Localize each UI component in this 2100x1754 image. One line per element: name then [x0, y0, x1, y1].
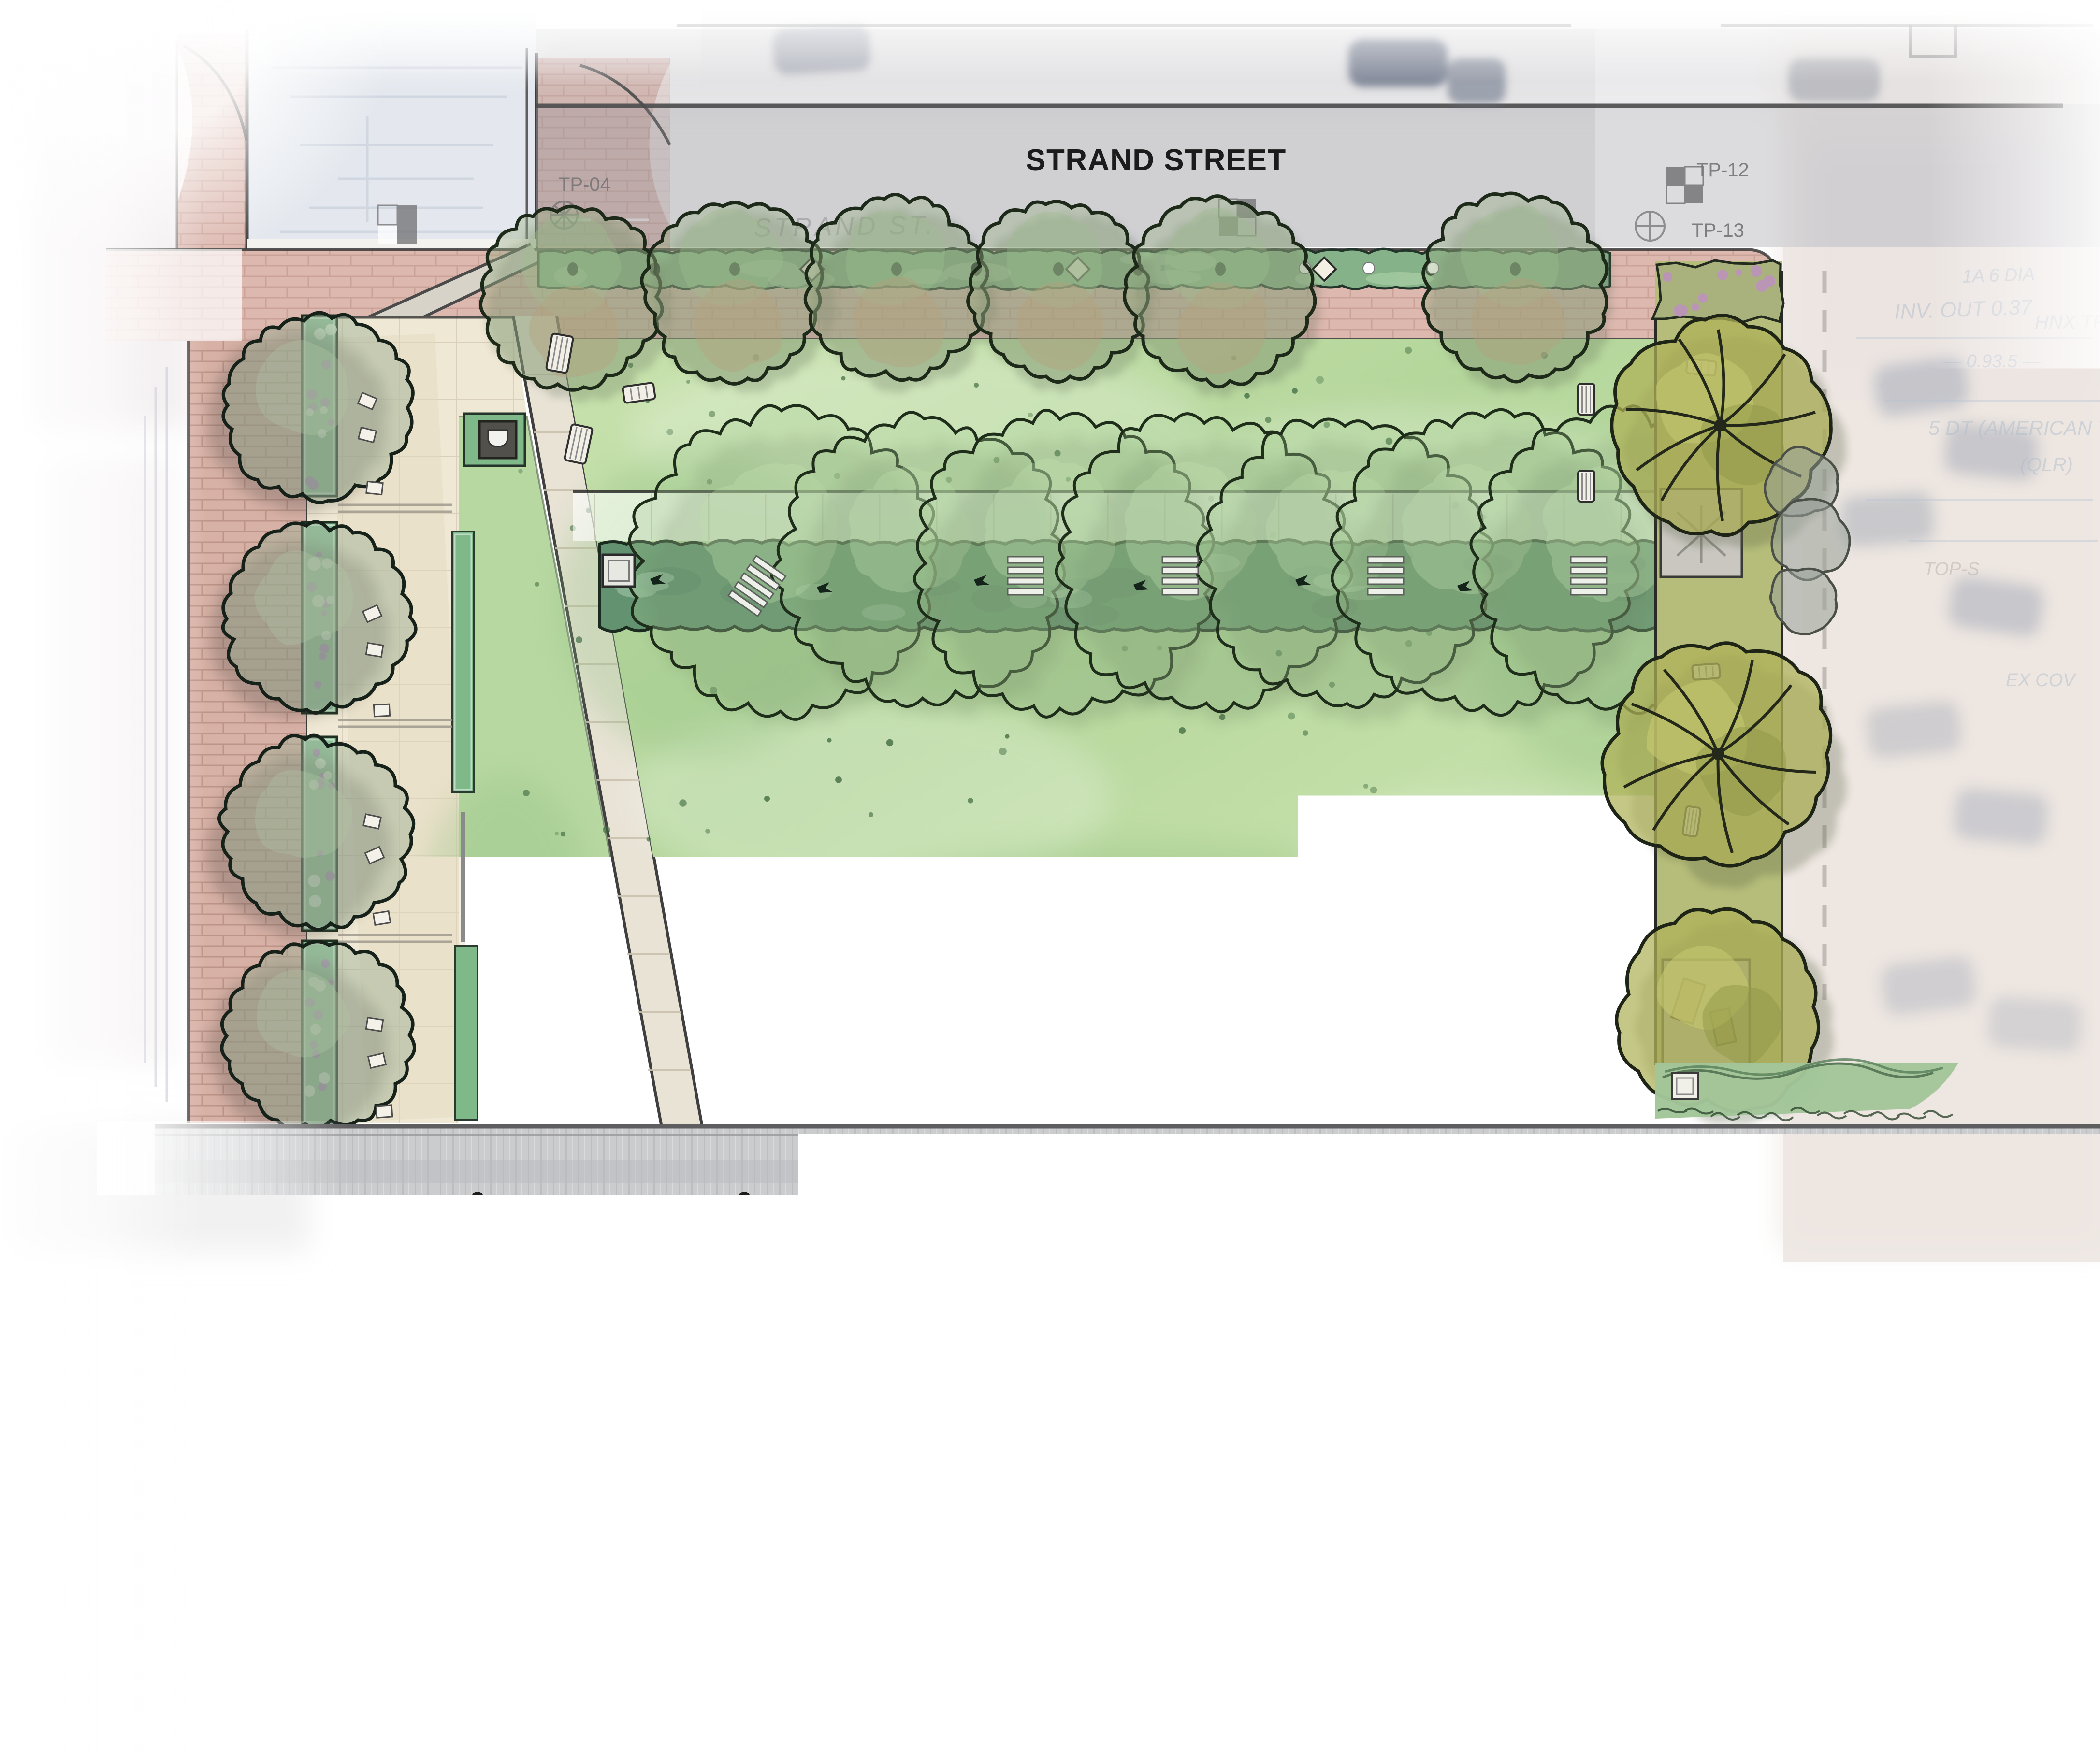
svg-text:TP-13: TP-13 — [1692, 220, 1744, 241]
svg-text:CHEESEMAN QUAY: CHEESEMAN QUAY — [196, 620, 229, 914]
svg-text:BOAT CLUB: BOAT CLUB — [1852, 541, 2027, 573]
svg-text:OLD DOMINION: OLD DOMINION — [1826, 501, 2052, 533]
svg-text:TO WATERFRONT: TO WATERFRONT — [1760, 1290, 2026, 1322]
svg-text:60': 60' — [1795, 1550, 1834, 1583]
svg-text:LANDING: LANDING — [132, 1326, 269, 1359]
svg-text:TO ROBINSON: TO ROBINSON — [95, 1287, 307, 1320]
svg-text:STRAND STREET: STRAND STREET — [1026, 144, 1287, 177]
svg-text:30': 30' — [1637, 1550, 1676, 1583]
svg-text:TP-04: TP-04 — [558, 174, 611, 195]
svg-text:15': 15' — [1563, 1550, 1602, 1583]
svg-text:TP-12: TP-12 — [1696, 159, 1749, 181]
svg-text:PARKING LOT: PARKING LOT — [1836, 581, 2042, 613]
svg-text:0: 0 — [1488, 1550, 1505, 1583]
svg-text:PARK: PARK — [1851, 1327, 1934, 1360]
